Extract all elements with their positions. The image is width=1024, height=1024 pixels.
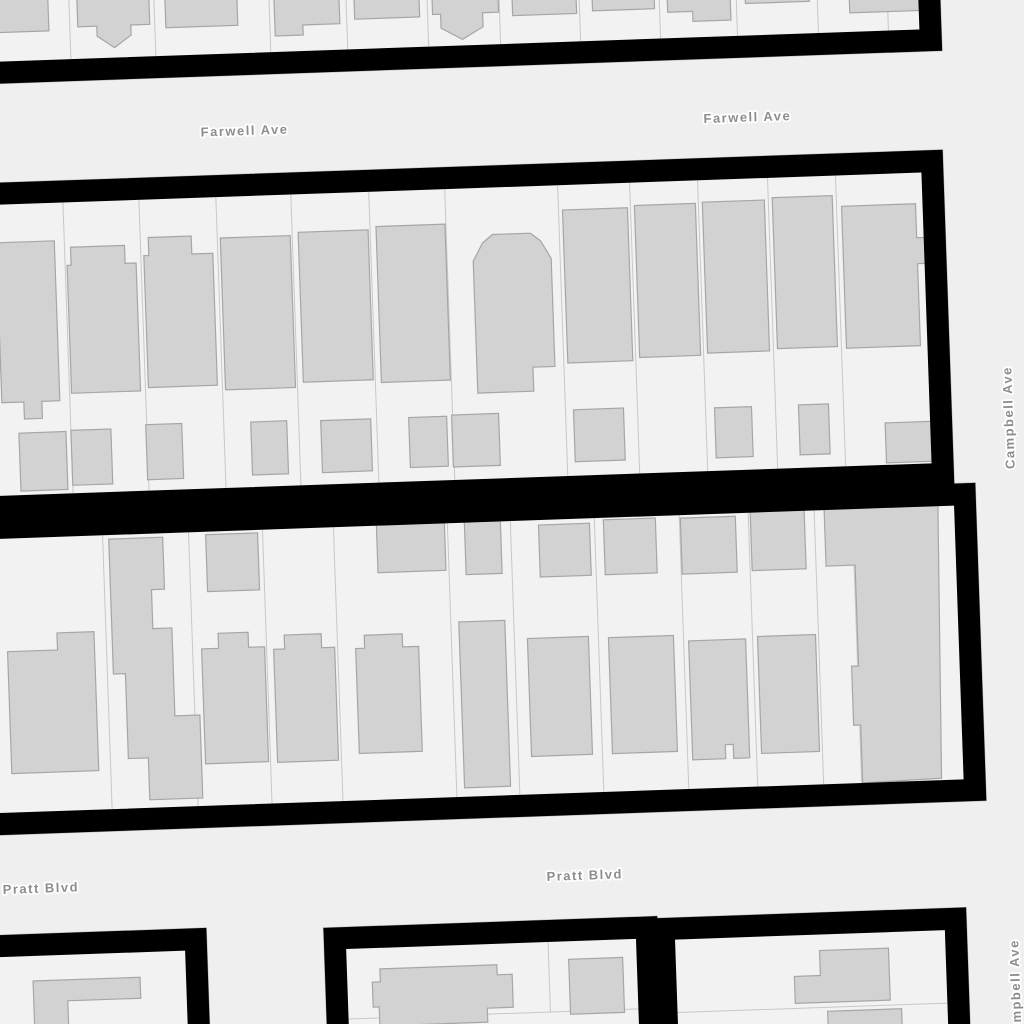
building-footprint [757,634,819,753]
garage-footprint [71,429,113,485]
street-label-pratt-center: Pratt Blvd [546,866,623,884]
building-footprint [351,0,419,19]
building-footprint [589,0,654,11]
garage-footprint [409,416,449,467]
building-footprint [459,620,511,788]
building-footprint [569,957,625,1014]
building-footprint [66,245,140,393]
building-footprint [527,636,592,756]
building-footprint [220,236,295,390]
building-footprint [273,633,338,762]
garage-footprint [538,523,591,577]
garage-footprint [750,509,806,571]
building-footprint [376,224,450,382]
building-footprint [772,196,837,349]
building-footprint [828,1009,903,1024]
building-footprint [163,0,238,28]
street-label-pratt-west: Pratt Blvd [2,879,79,897]
street-label-campbell-south: Campbell Ave [1006,939,1024,1024]
building-footprint [634,203,700,357]
garage-footprint [321,419,373,473]
garage-footprint [19,432,68,492]
building-footprint [7,632,99,774]
garage-footprint [573,408,625,462]
building-footprint [298,230,373,382]
street-label-farwell-west: Farwell Ave [200,122,288,140]
garage-footprint [680,516,737,574]
building-footprint [0,0,49,33]
building-footprint [562,208,632,363]
garage-footprint [251,421,289,475]
building-footprint [509,0,576,16]
building-footprint [355,633,422,753]
building-footprint [702,200,769,353]
garage-footprint [885,421,934,463]
garage-footprint [714,407,753,458]
garage-footprint [146,423,184,479]
garage-footprint [603,518,657,575]
building-footprint [846,0,921,13]
garage-footprint [798,404,830,455]
building-footprint [608,635,677,753]
garage-footprint [464,518,502,574]
building-footprint [143,235,217,387]
building-footprint [201,632,268,764]
building-footprint [689,639,750,760]
street-label-farwell-east: Farwell Ave [703,108,791,126]
garage-footprint [206,533,260,592]
garage-footprint [452,413,501,467]
garage-footprint [376,520,446,572]
building-footprint [0,241,60,420]
map-canvas[interactable]: Farwell Ave Farwell Ave Campbell Ave Cam… [0,0,1024,1024]
